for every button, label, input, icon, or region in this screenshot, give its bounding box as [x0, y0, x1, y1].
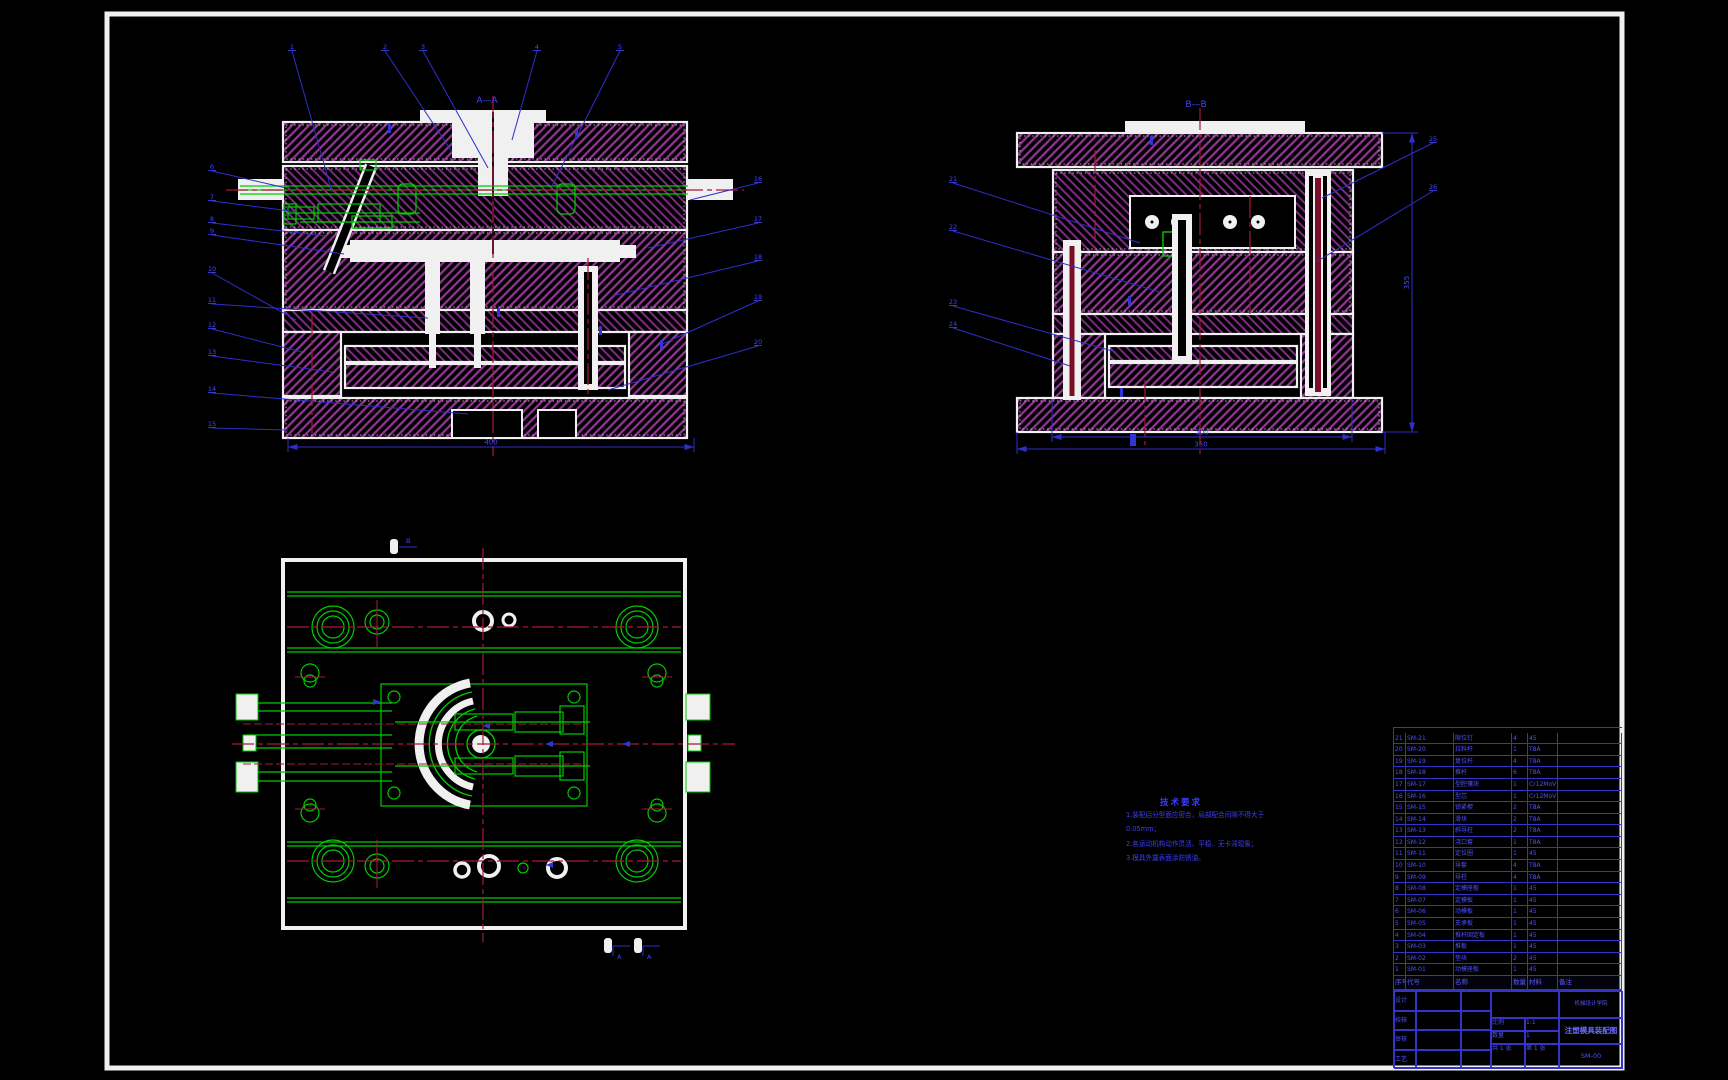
bom-cell: 4: [1512, 733, 1528, 744]
balloon-number: 21: [949, 175, 957, 183]
bom-cell: 定位圈: [1454, 848, 1512, 859]
bom-cell: 17: [1394, 779, 1406, 790]
balloon-number: 1: [290, 43, 294, 51]
bom-cell: 推板: [1454, 941, 1512, 952]
bom-row: 16SM-16型芯1Cr12MoV: [1394, 791, 1622, 803]
dimension-value: 350: [1194, 441, 1207, 449]
bom-row: 4SM-04推杆固定板145: [1394, 930, 1622, 942]
bom-cell: SM-14: [1406, 814, 1454, 825]
bom-row: 14SM-14滑块2T8A: [1394, 814, 1622, 826]
bom-cell: 名称: [1454, 976, 1512, 989]
technical-notes: 技术要求 1.装配后分型面应密合，局部配合间隙不得大于0.05mm；2.各运动机…: [1126, 796, 1316, 866]
bom-cell: 数量: [1512, 976, 1528, 989]
cad-drawing-screenshot: A—A B—B B A A 12345678910111213141516171…: [0, 0, 1728, 1080]
balloon-number: 13: [208, 348, 216, 356]
bom-row: 1SM-01动模座板145: [1394, 964, 1622, 976]
bom-cell: 复位杆: [1454, 756, 1512, 767]
balloon-number: 16: [754, 175, 762, 183]
notes-line: 3.模具外露表面涂防锈油。: [1126, 851, 1316, 865]
bom-cell: 定模板: [1454, 895, 1512, 906]
bom-cell: T8A: [1528, 744, 1558, 755]
leader-line: [212, 428, 288, 430]
bom-cell: 19: [1394, 756, 1406, 767]
balloon-number: 20: [754, 338, 762, 346]
bom-row: 2SM-02垫块245: [1394, 953, 1622, 965]
bom-row: 15SM-15锁紧楔2T8A: [1394, 802, 1622, 814]
bom-cell: 支承板: [1454, 918, 1512, 929]
bom-cell: 45: [1528, 906, 1558, 917]
bom-cell: [1558, 744, 1622, 755]
bom-cell: 45: [1528, 941, 1558, 952]
bom-cell: SM-06: [1406, 906, 1454, 917]
ejector-retainer-side: [1109, 346, 1297, 361]
bom-cell: 推杆: [1454, 767, 1512, 778]
notes-line: 2.各运动机构动作灵活、平稳、无卡滞现象；: [1126, 837, 1316, 851]
bom-cell: 1: [1512, 883, 1528, 894]
tb-material-cell: [1491, 991, 1559, 1018]
balloon-number: 5: [618, 43, 622, 51]
section-label-front: A—A: [476, 96, 498, 106]
balloon-number: 26: [1429, 183, 1437, 191]
notes-line: 0.05mm；: [1126, 822, 1316, 836]
bom-cell: 2: [1394, 953, 1406, 964]
bom-cell: [1558, 918, 1622, 929]
bom-cell: SM-12: [1406, 837, 1454, 848]
balloon-number: 18: [754, 253, 762, 261]
balloon-number: 4: [535, 43, 539, 51]
bom-cell: 序号: [1394, 976, 1406, 989]
bom-cell: T8A: [1528, 860, 1558, 871]
bom-row: 11SM-11定位圈145: [1394, 848, 1622, 860]
bom-cell: 3: [1394, 941, 1406, 952]
tb-scale-label: 比例: [1491, 1018, 1525, 1031]
view-side-section: [1017, 108, 1418, 455]
bom-cell: T8A: [1528, 837, 1558, 848]
bom-cell: 1: [1512, 744, 1528, 755]
bom-cell: 1: [1512, 930, 1528, 941]
balloon-number: 3: [421, 43, 425, 51]
dimension-value: 300: [1195, 429, 1208, 437]
bom-cell: 1: [1512, 779, 1528, 790]
bom-cell: 备注: [1558, 976, 1622, 989]
locating-ring: [420, 110, 546, 122]
bom-cell: SM-09: [1406, 872, 1454, 883]
bom-cell: SM-07: [1406, 895, 1454, 906]
bom-cell: [1558, 953, 1622, 964]
bom-header-row: 序号代号名称数量材料备注: [1394, 976, 1622, 990]
tb-qty-label: 数量: [1491, 1031, 1525, 1044]
bom-cell: [1558, 941, 1622, 952]
bom-cell: 拉料杆: [1454, 744, 1512, 755]
tb-role-label: 设计: [1394, 991, 1416, 1011]
bom-cell: [1558, 848, 1622, 859]
bom-cell: Cr12MoV: [1528, 791, 1558, 802]
balloon-number: 9: [210, 227, 214, 235]
tb-blank-cell: [1416, 1011, 1461, 1031]
balloon-number: 22: [949, 223, 957, 231]
bom-row: 21SM-21限位钉445: [1394, 733, 1622, 745]
bom-cell: 型芯: [1454, 791, 1512, 802]
bom-cell: 5: [1394, 918, 1406, 929]
bom-cell: 动模座板: [1454, 964, 1512, 975]
spacer-rail-right: [629, 332, 687, 396]
bom-cell: 锁紧楔: [1454, 802, 1512, 813]
bom-cell: [1558, 825, 1622, 836]
balloon-number: 25: [1429, 135, 1437, 143]
bom-row: 18SM-18推杆6T8A: [1394, 767, 1622, 779]
bom-cell: SM-08: [1406, 883, 1454, 894]
bom-cell: 45: [1528, 733, 1558, 744]
bom-cell: 21: [1394, 733, 1406, 744]
bom-cell: 20: [1394, 744, 1406, 755]
bom-row: 6SM-06动模板145: [1394, 906, 1622, 918]
tb-blank-cell: [1416, 1050, 1461, 1070]
bom-cell: 18: [1394, 767, 1406, 778]
bom-cell: T8A: [1528, 825, 1558, 836]
bom-cell: [1558, 930, 1622, 941]
bom-cell: T8A: [1528, 802, 1558, 813]
bom-row: 19SM-19复位杆4T8A: [1394, 756, 1622, 768]
balloon-number: 17: [754, 215, 762, 223]
balloon-number: 24: [949, 320, 957, 328]
bom-cell: 4: [1512, 756, 1528, 767]
bom-cell: 1: [1512, 791, 1528, 802]
bom-cell: 9: [1394, 872, 1406, 883]
ejector-base-side: [1109, 363, 1297, 387]
bom-cell: SM-05: [1406, 918, 1454, 929]
bom-cell: 材料: [1528, 976, 1558, 989]
bom-row: 9SM-09导柱4T8A: [1394, 872, 1622, 884]
bom-cell: 动模板: [1454, 906, 1512, 917]
bom-cell: 1: [1512, 964, 1528, 975]
balloon-number: 14: [208, 385, 216, 393]
bom-cell: 8: [1394, 883, 1406, 894]
balloon-number: 15: [208, 420, 216, 428]
bom-cell: SM-01: [1406, 964, 1454, 975]
bom-cell: SM-11: [1406, 848, 1454, 859]
bom-cell: SM-15: [1406, 802, 1454, 813]
bom-cell: 浇口套: [1454, 837, 1512, 848]
bom-cell: 导柱: [1454, 872, 1512, 883]
bom-cell: 2: [1512, 825, 1528, 836]
bom-cell: 10: [1394, 860, 1406, 871]
dimension-value: 355: [1403, 276, 1411, 289]
bom-cell: 1: [1512, 848, 1528, 859]
notes-title: 技术要求: [1126, 796, 1316, 808]
bom-row: 8SM-08定模座板145: [1394, 883, 1622, 895]
bom-cell: 16: [1394, 791, 1406, 802]
balloon-number: 12: [208, 321, 216, 329]
bom-cell: [1558, 860, 1622, 871]
bom-cell: [1558, 895, 1622, 906]
bom-row: 3SM-03推板145: [1394, 941, 1622, 953]
bom-cell: 2: [1512, 953, 1528, 964]
bom-row: 7SM-07定模板145: [1394, 895, 1622, 907]
tb-drawing-title: 注塑模具装配图: [1559, 1018, 1623, 1044]
bom-cell: 1: [1394, 964, 1406, 975]
balloon-number: 2: [383, 43, 387, 51]
tb-role-label: 审核: [1394, 1030, 1416, 1050]
bom-cell: SM-21: [1406, 733, 1454, 744]
bom-cell: SM-20: [1406, 744, 1454, 755]
dimension-value: 400: [484, 439, 497, 447]
bom-cell: 1: [1512, 906, 1528, 917]
bom-cell: 6: [1512, 767, 1528, 778]
bom-cell: 垫块: [1454, 953, 1512, 964]
bom-cell: 4: [1512, 860, 1528, 871]
notes-line: 1.装配后分型面应密合，局部配合间隙不得大于: [1126, 808, 1316, 822]
bom-cell: 4: [1512, 872, 1528, 883]
bom-cell: [1558, 802, 1622, 813]
bom-cell: SM-02: [1406, 953, 1454, 964]
balloon-number: 11: [208, 296, 216, 304]
bom-cell: [1558, 872, 1622, 883]
bom-cell: SM-03: [1406, 941, 1454, 952]
bom-cell: SM-13: [1406, 825, 1454, 836]
bom-cell: 定模座板: [1454, 883, 1512, 894]
bom-row: 13SM-13斜导柱2T8A: [1394, 825, 1622, 837]
tb-blank-cell: [1461, 991, 1491, 1011]
bom-cell: 代号: [1406, 976, 1454, 989]
balloon-number: 10: [208, 265, 216, 273]
bom-cell: [1558, 733, 1622, 744]
bom-row: 10SM-10导套4T8A: [1394, 860, 1622, 872]
bom-cell: [1558, 964, 1622, 975]
marker-letter-bottom-right: A: [647, 953, 652, 961]
bom-row: 20SM-20拉料杆1T8A: [1394, 744, 1622, 756]
bom-cell: 15: [1394, 802, 1406, 813]
bom-cell: 限位钉: [1454, 733, 1512, 744]
bom-row: 17SM-17型腔镶块1Cr12MoV: [1394, 779, 1622, 791]
bom-cell: T8A: [1528, 814, 1558, 825]
bom-cell: 12: [1394, 837, 1406, 848]
tb-blank-cell: [1461, 1030, 1491, 1050]
bom-cell: SM-10: [1406, 860, 1454, 871]
bom-cell: 2: [1512, 802, 1528, 813]
bom-row: 12SM-12浇口套1T8A: [1394, 837, 1622, 849]
bom-cell: 6: [1394, 906, 1406, 917]
bom-cell: 14: [1394, 814, 1406, 825]
view-plan: [232, 539, 735, 956]
title-block: 设计校核审核工艺 比例 1:1 数量 1 共 1 张 第 1 张 机械设计学院 …: [1393, 990, 1622, 1068]
bom-cell: Cr12MoV: [1528, 779, 1558, 790]
bom-cell: SM-17: [1406, 779, 1454, 790]
bom-cell: 2: [1512, 814, 1528, 825]
bom-cell: SM-19: [1406, 756, 1454, 767]
bom-cell: [1558, 906, 1622, 917]
balloon-number: 19: [754, 293, 762, 301]
bom-cell: SM-04: [1406, 930, 1454, 941]
bom-cell: 13: [1394, 825, 1406, 836]
bom-cell: [1558, 883, 1622, 894]
bom-cell: 45: [1528, 918, 1558, 929]
tb-drawing-no: SM-00: [1559, 1044, 1623, 1069]
tb-blank-cell: [1461, 1050, 1491, 1070]
tb-blank-cell: [1416, 1030, 1461, 1050]
balloon-number: 8: [210, 215, 214, 223]
bom-cell: [1558, 756, 1622, 767]
bom-cell: 11: [1394, 848, 1406, 859]
bom-cell: 45: [1528, 953, 1558, 964]
tb-qty-value: 1: [1525, 1031, 1559, 1044]
bom-row: 5SM-05支承板145: [1394, 918, 1622, 930]
bom-cell: 型腔镶块: [1454, 779, 1512, 790]
bom-cell: [1558, 837, 1622, 848]
marker-letter-bottom-left: A: [617, 953, 622, 961]
bom-cell: T8A: [1528, 872, 1558, 883]
tb-role-label: 工艺: [1394, 1050, 1416, 1070]
balloon-number: 6: [210, 163, 214, 171]
bom-cell: 45: [1528, 964, 1558, 975]
tb-sheet-right: 第 1 张: [1525, 1044, 1559, 1069]
bom-cell: 7: [1394, 895, 1406, 906]
bom-cell: [1558, 767, 1622, 778]
runner-channel: [350, 240, 620, 262]
bom-cell: 4: [1394, 930, 1406, 941]
balloon-number: 7: [210, 193, 214, 201]
bom-cell: 45: [1528, 930, 1558, 941]
bom-cell: 45: [1528, 883, 1558, 894]
tb-blank-cell: [1416, 991, 1461, 1011]
bom-cell: [1558, 814, 1622, 825]
bom-cell: 1: [1512, 895, 1528, 906]
bom-cell: 45: [1528, 848, 1558, 859]
balloon-number: 23: [949, 298, 957, 306]
bom-cell: SM-16: [1406, 791, 1454, 802]
section-label-side: B—B: [1185, 100, 1206, 110]
bom-cell: 滑块: [1454, 814, 1512, 825]
bom-cell: [1558, 791, 1622, 802]
bom-cell: T8A: [1528, 767, 1558, 778]
bom-cell: 1: [1512, 941, 1528, 952]
bom-cell: 45: [1528, 895, 1558, 906]
bom-cell: 1: [1512, 837, 1528, 848]
view-front-section: [226, 96, 744, 456]
tb-unit-name: 机械设计学院: [1559, 991, 1623, 1018]
tb-scale-value: 1:1: [1525, 1018, 1559, 1031]
parts-list-table: 21SM-21限位钉44520SM-20拉料杆1T8A19SM-19复位杆4T8…: [1393, 727, 1622, 990]
marker-letter-top: B: [406, 537, 410, 545]
bom-cell: [1558, 779, 1622, 790]
bom-cell: 推杆固定板: [1454, 930, 1512, 941]
bom-cell: SM-18: [1406, 767, 1454, 778]
bom-cell: 斜导柱: [1454, 825, 1512, 836]
bom-cell: T8A: [1528, 756, 1558, 767]
bom-cell: 导套: [1454, 860, 1512, 871]
tb-role-label: 校核: [1394, 1011, 1416, 1031]
bom-cell: 1: [1512, 918, 1528, 929]
tb-blank-cell: [1461, 1011, 1491, 1031]
tb-sheet-left: 共 1 张: [1491, 1044, 1525, 1069]
